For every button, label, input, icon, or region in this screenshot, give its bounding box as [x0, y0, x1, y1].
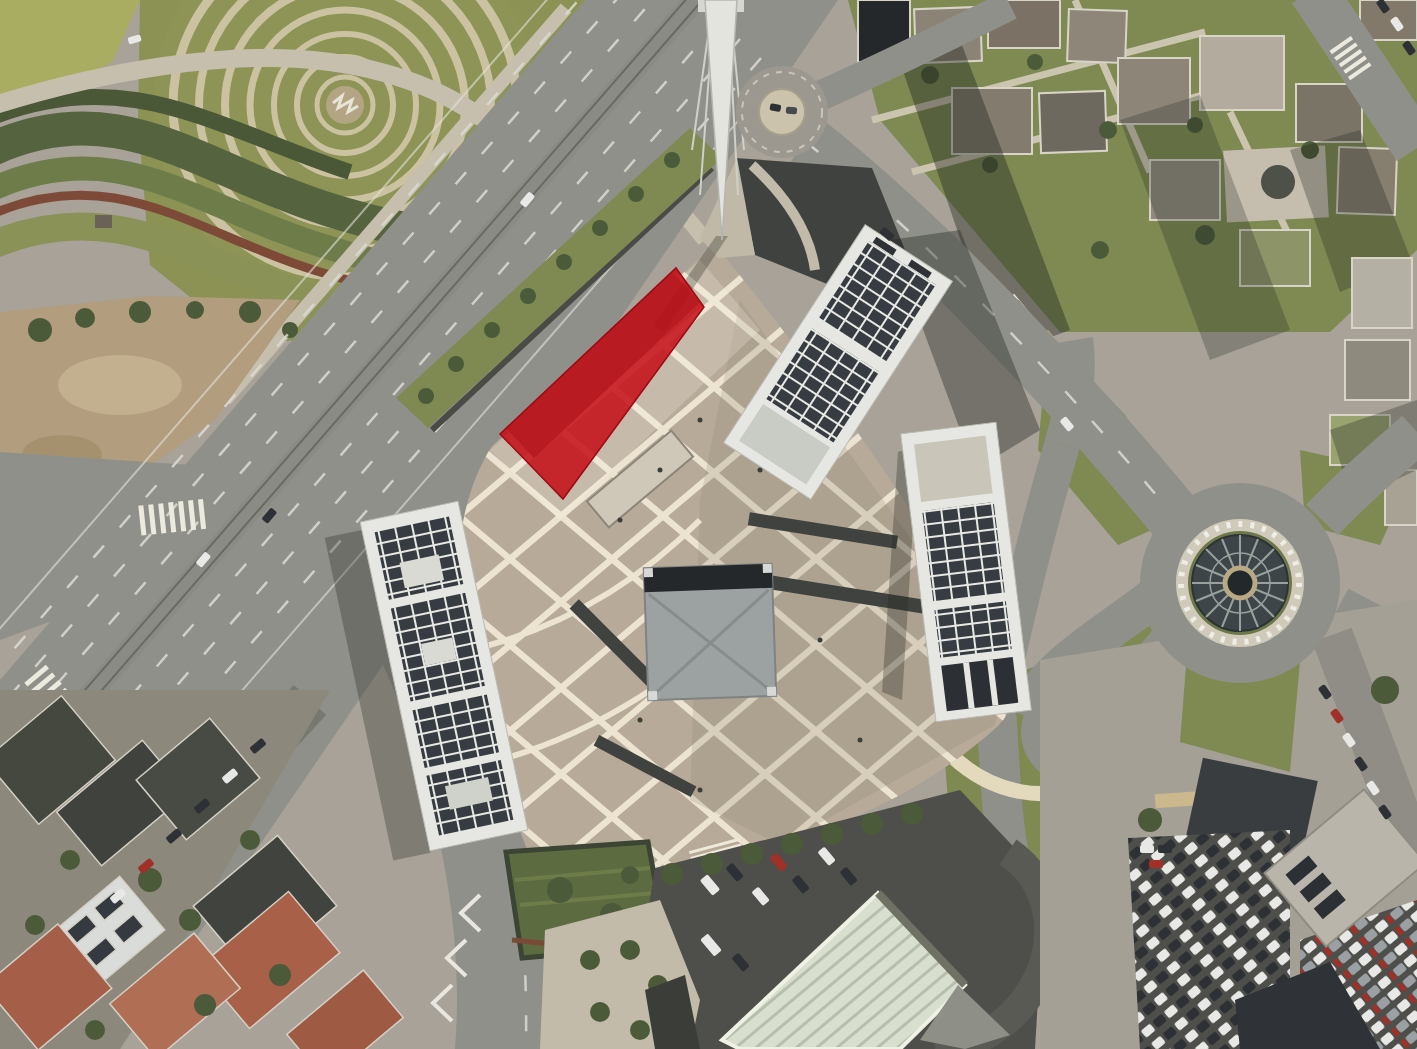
car: [786, 107, 798, 115]
aerial-satellite-view: [0, 0, 1417, 1049]
satellite-image: [0, 0, 1417, 1049]
small-roundabout: [736, 66, 828, 158]
shed: [95, 215, 112, 228]
circle-motif: [1261, 165, 1295, 199]
central-pavilion: [644, 564, 777, 700]
dome-oculus: [1225, 568, 1255, 598]
roof-courtyard: [914, 436, 993, 502]
dome-roundabout: [1140, 483, 1340, 683]
